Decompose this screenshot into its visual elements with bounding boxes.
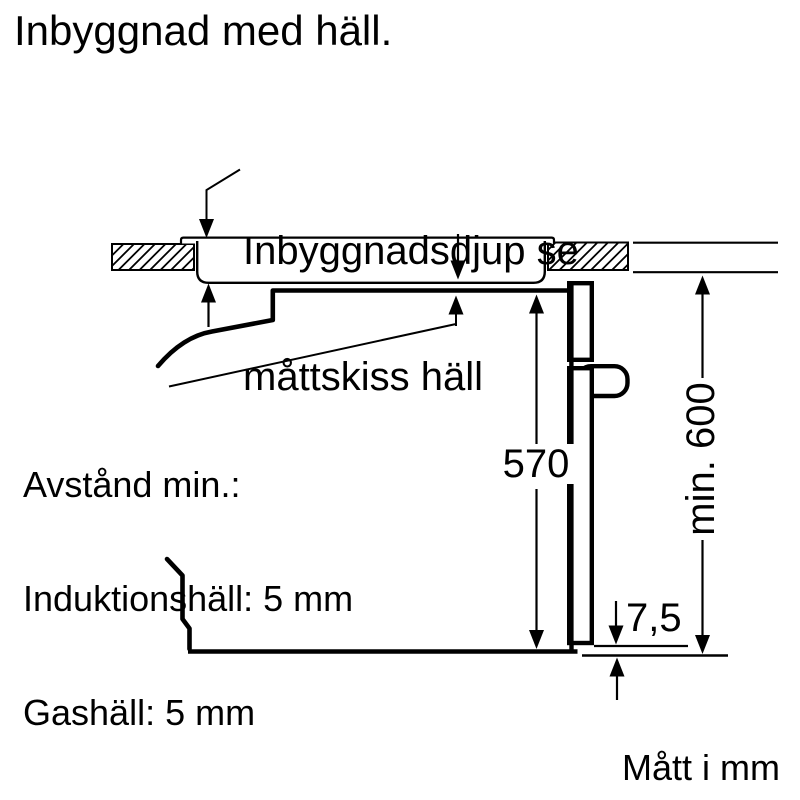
dimension-75-label: 7,5: [626, 598, 682, 638]
dimension-570-label: 570: [498, 444, 575, 484]
page-title: Inbyggnad med häll.: [14, 9, 392, 53]
clearance-note: Avstånd min.: Induktionshäll: 5 mm Gashä…: [23, 390, 353, 800]
callout-leader-arrow: [199, 170, 240, 239]
countertop-hatched-left: [112, 244, 194, 270]
callout-line-1: Inbyggnadsdjup se: [243, 230, 579, 272]
installation-diagram-page: Inbyggnad med häll. Inbyggnadsdjup se må…: [0, 0, 800, 800]
clearance-item-induction: Induktionshäll: 5 mm: [23, 580, 353, 618]
clearance-item-gas: Gashäll: 5 mm: [23, 694, 353, 732]
units-note: Mått i mm: [622, 749, 780, 787]
clearance-heading: Avstånd min.:: [23, 466, 353, 504]
countertop-outline-right: [633, 243, 778, 273]
clearance-arrow-left: [201, 284, 216, 328]
dimension-min600-label: min. 600: [681, 378, 721, 539]
